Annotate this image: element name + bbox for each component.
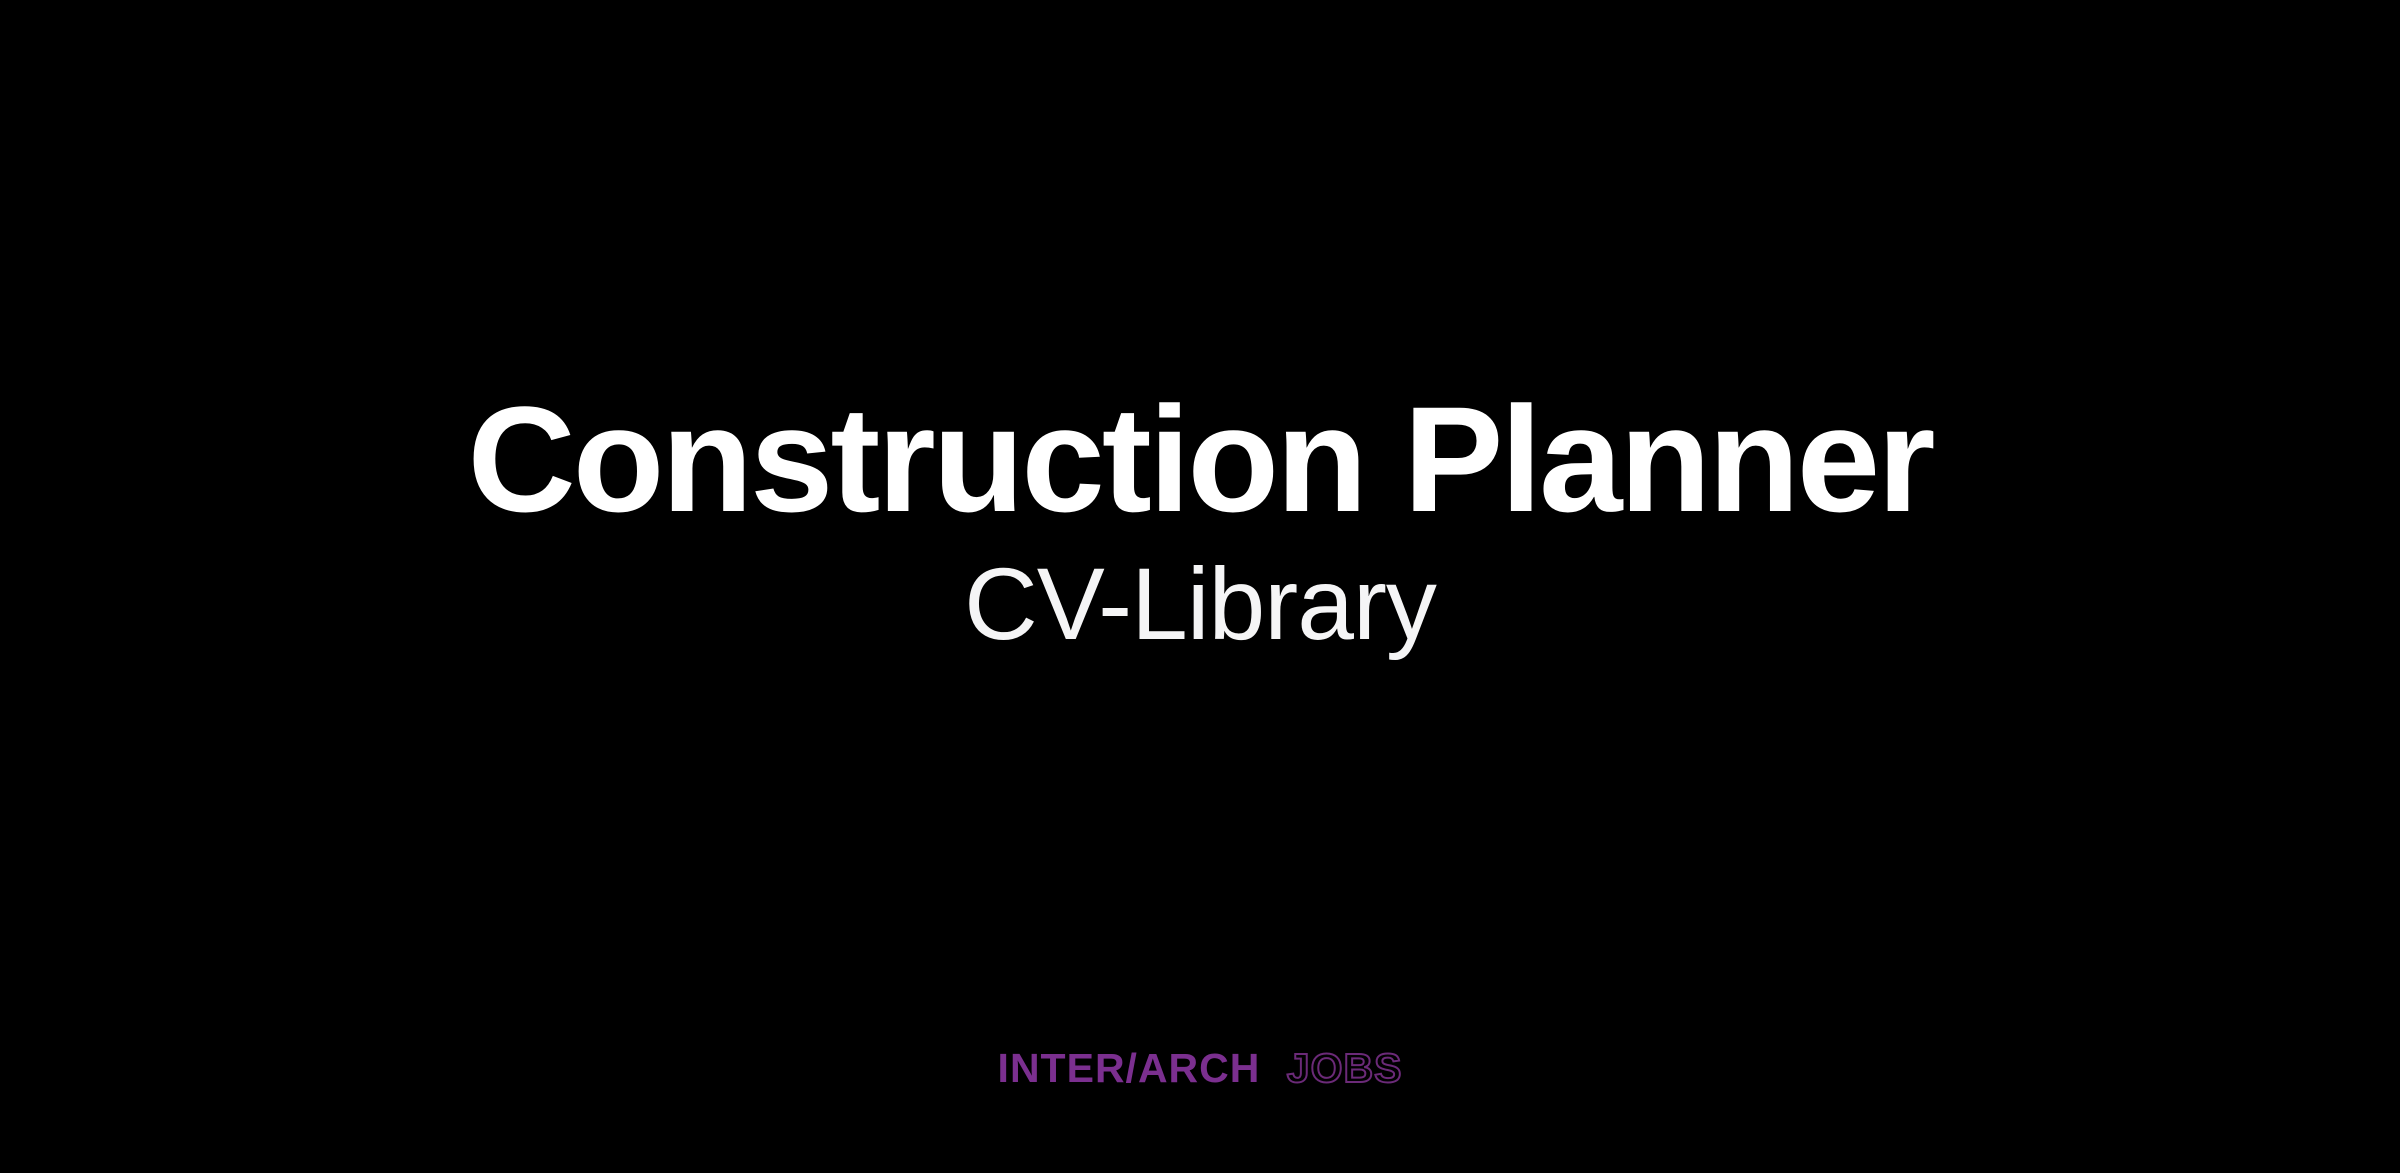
brand-logo: INTER/ARCH JOBS xyxy=(0,1048,2400,1089)
brand-logo-secondary: JOBS xyxy=(1287,1045,1403,1091)
banner: Construction Planner CV-Library INTER/AR… xyxy=(0,0,2400,1173)
page-title: Construction Planner xyxy=(0,384,2400,534)
page-subtitle: CV-Library xyxy=(0,553,2400,655)
brand-logo-primary: INTER/ARCH xyxy=(998,1045,1261,1091)
